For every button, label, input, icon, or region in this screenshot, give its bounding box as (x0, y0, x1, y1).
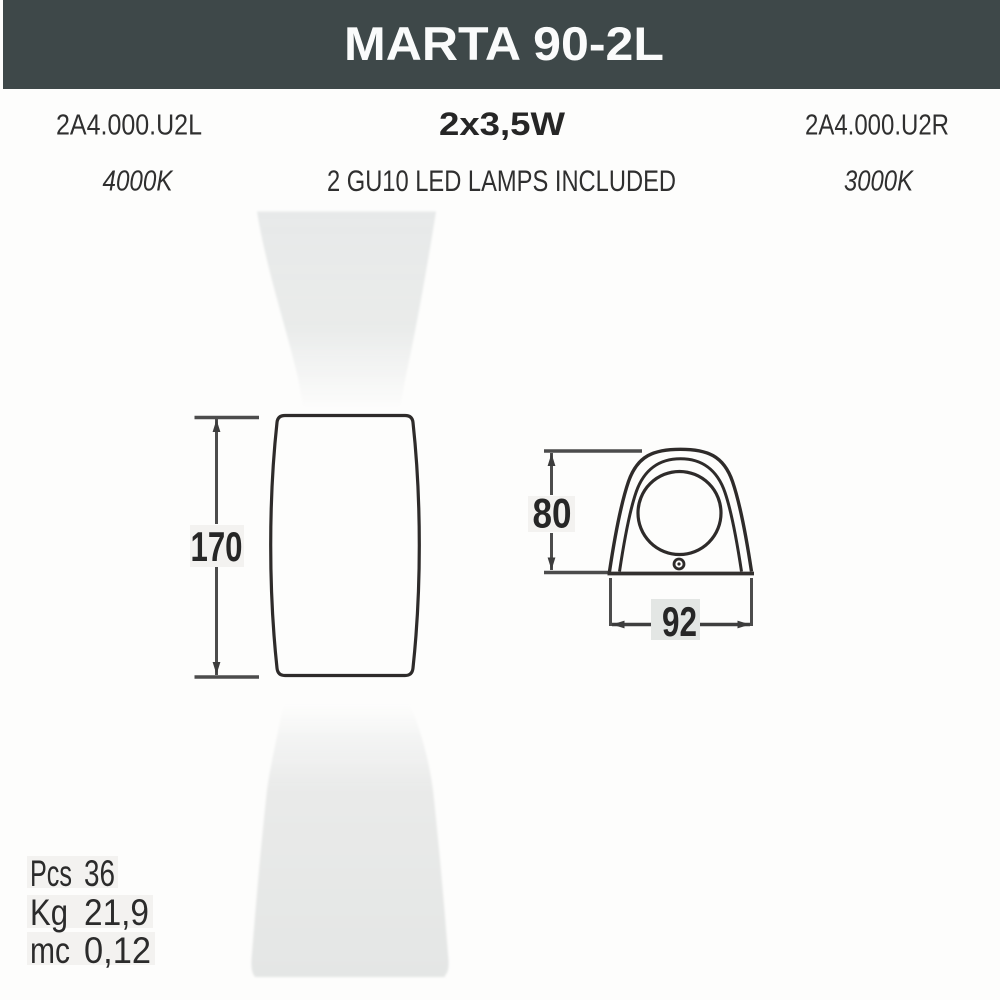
svg-text:Kg: Kg (30, 892, 68, 933)
svg-text:2x3,5W: 2x3,5W (439, 106, 566, 142)
svg-text:2 GU10 LED LAMPS INCLUDED: 2 GU10 LED LAMPS INCLUDED (327, 165, 676, 198)
svg-text:3000K: 3000K (844, 166, 914, 198)
svg-text:0,12: 0,12 (84, 930, 151, 971)
svg-text:170: 170 (191, 523, 243, 570)
svg-text:mc: mc (30, 930, 70, 971)
svg-text:MARTA 90-2L: MARTA 90-2L (344, 17, 664, 70)
svg-text:2A4.000.U2L: 2A4.000.U2L (56, 110, 202, 142)
svg-text:2A4.000.U2R: 2A4.000.U2R (805, 110, 949, 142)
svg-text:4000K: 4000K (103, 166, 174, 198)
svg-text:92: 92 (662, 598, 697, 645)
svg-text:80: 80 (533, 490, 572, 537)
svg-text:36: 36 (84, 853, 115, 894)
svg-text:21,9: 21,9 (84, 892, 149, 933)
svg-text:Pcs: Pcs (30, 853, 72, 894)
